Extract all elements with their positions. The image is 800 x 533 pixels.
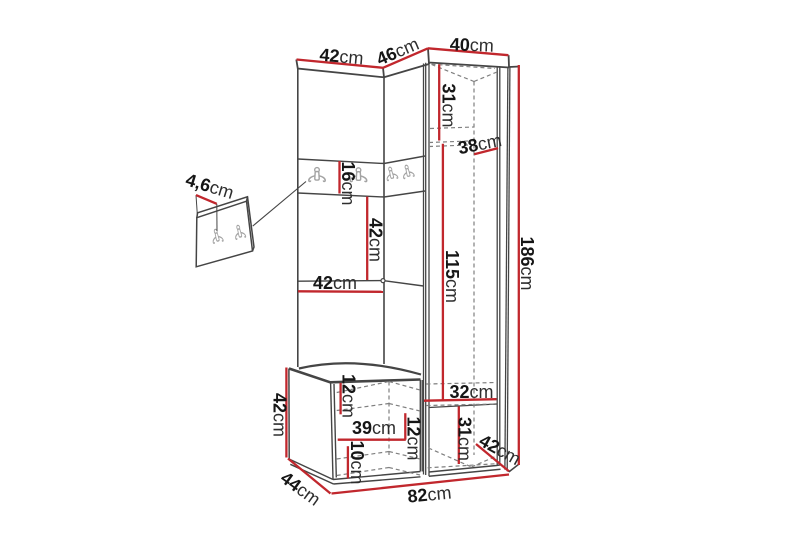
svg-text:16cm: 16cm bbox=[338, 161, 358, 205]
svg-text:42cm: 42cm bbox=[270, 393, 290, 437]
svg-text:42cm: 42cm bbox=[365, 218, 385, 262]
svg-text:12cm: 12cm bbox=[338, 374, 358, 418]
svg-text:82cm: 82cm bbox=[407, 482, 453, 506]
svg-text:10cm: 10cm bbox=[347, 440, 367, 484]
svg-text:40cm: 40cm bbox=[449, 34, 494, 56]
svg-text:39cm: 39cm bbox=[352, 418, 396, 438]
svg-text:186cm: 186cm bbox=[517, 236, 537, 290]
svg-text:31cm: 31cm bbox=[439, 83, 459, 127]
svg-text:12cm: 12cm bbox=[403, 416, 423, 460]
svg-text:31cm: 31cm bbox=[454, 417, 474, 461]
svg-text:32cm: 32cm bbox=[449, 382, 493, 402]
svg-text:42cm: 42cm bbox=[313, 273, 357, 293]
svg-text:42cm: 42cm bbox=[319, 45, 365, 69]
svg-text:115cm: 115cm bbox=[442, 250, 462, 303]
